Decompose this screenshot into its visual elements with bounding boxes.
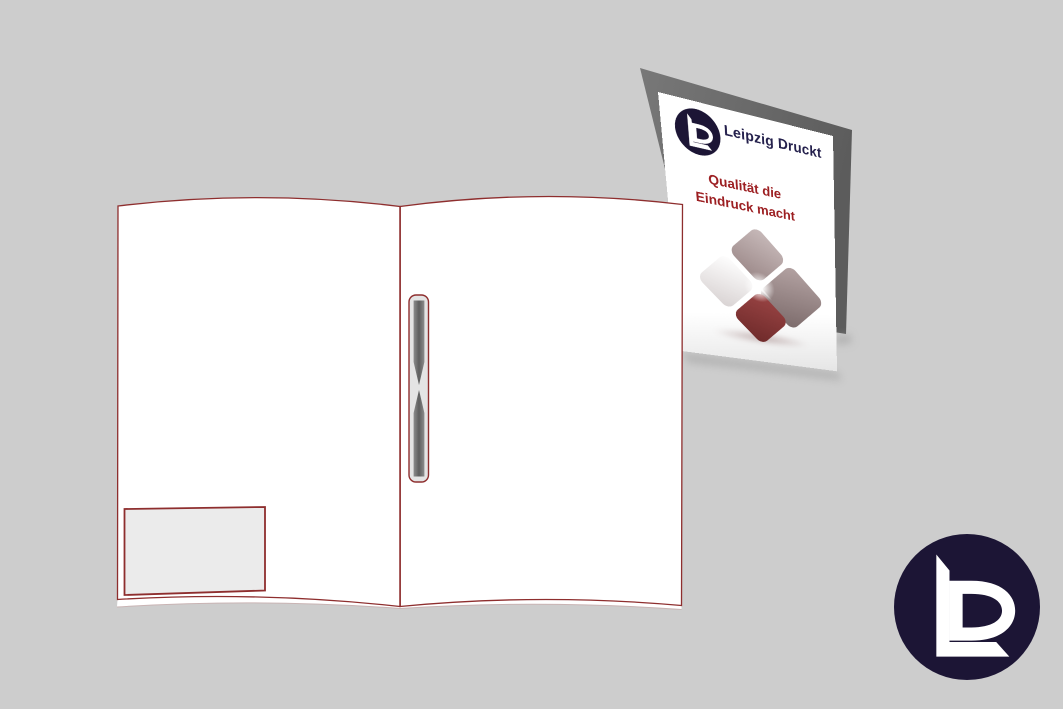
product-mockup-stage: Leipzig Druckt Qualität die Eindruck mac… [0,0,1063,709]
folder-right-page [400,196,683,606]
folder-left-page [118,198,401,607]
folder-under-sliver [117,596,682,609]
tagline: Qualität die Eindruck macht [675,162,811,229]
brand-name: Leipzig Druckt [723,121,833,164]
business-card-pocket [125,507,266,595]
pen-slot-strip-top [414,301,425,386]
brochure-front-panel: Leipzig Druckt Qualität die Eindruck mac… [658,92,837,371]
pen-slot-strip-bottom [414,390,425,477]
pen-slot [409,295,429,482]
ld-logo-icon [673,103,722,160]
tagline-line1: Qualität die [675,162,811,211]
brochure-back-shadow [834,334,852,345]
tagline-line2: Eindruck macht [677,182,811,229]
folder-under-sliver-edge [117,603,682,610]
ld-logo-badge [894,534,1040,680]
